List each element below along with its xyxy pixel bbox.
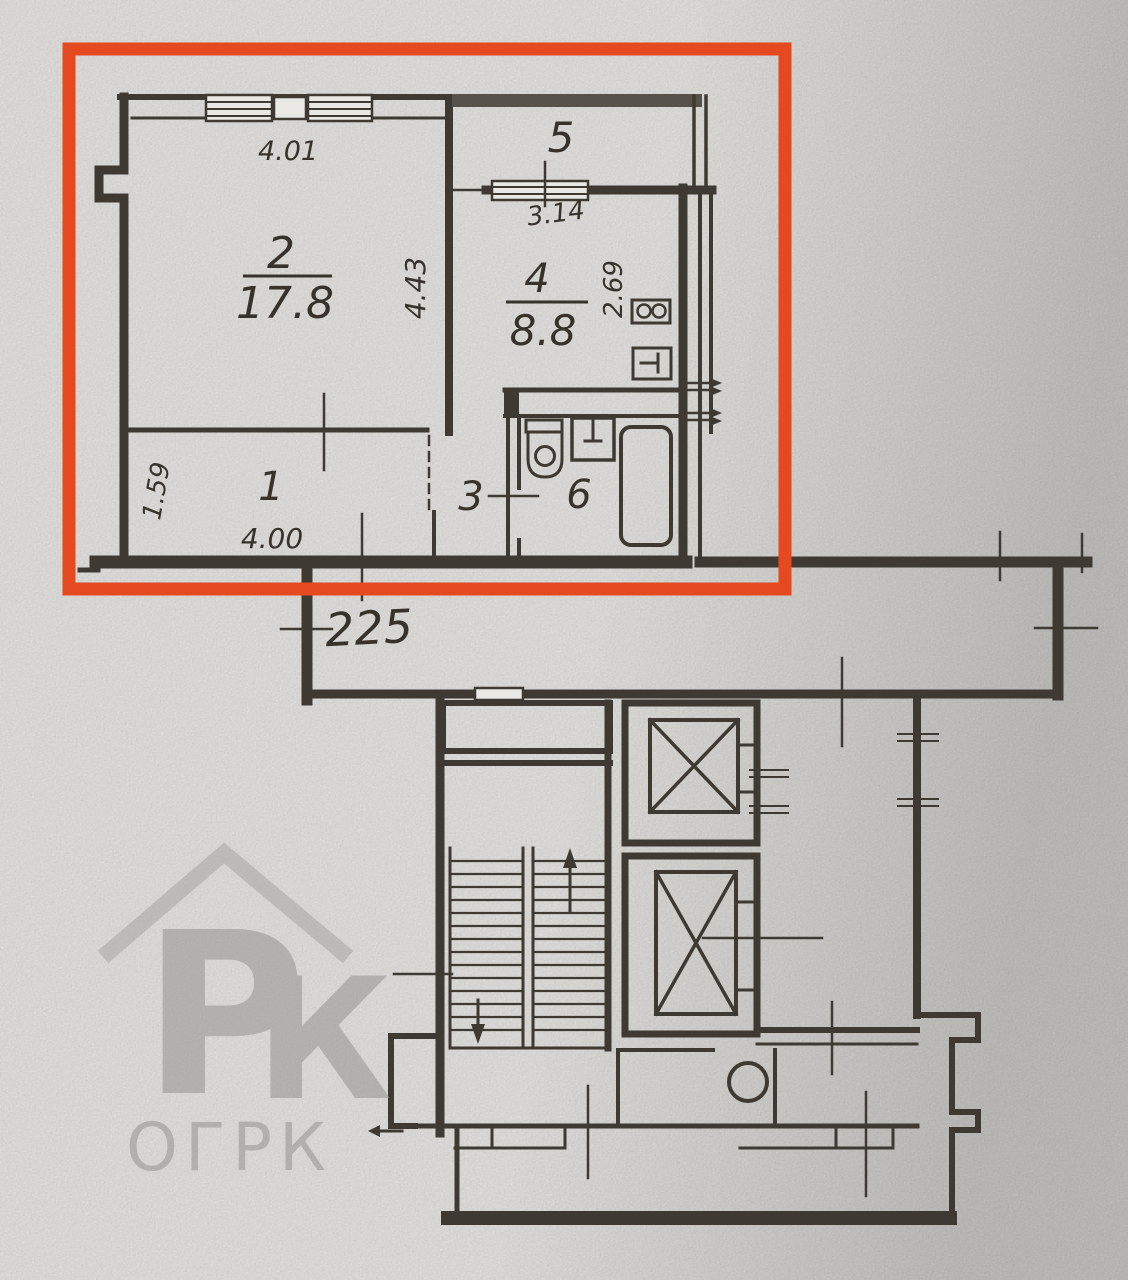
dimension-label: 4.43	[399, 257, 432, 319]
window-pier	[274, 97, 306, 119]
room-number: 4	[524, 256, 549, 302]
dimension-label: 4.00	[241, 522, 303, 555]
window-room2	[206, 95, 372, 121]
corridor-door-threshold	[475, 688, 523, 700]
watermark-brand: ОГРК	[126, 1109, 333, 1186]
floorplan-scan: 2 17.8 4 8.8 5 1 3 6 4.01 4.43 3.14 2.69…	[0, 0, 1128, 1280]
room-number: 1	[258, 464, 283, 510]
balcony-rail-top	[452, 94, 702, 107]
room-number: 2	[267, 228, 295, 279]
wall-junction-block	[504, 392, 519, 417]
dimension-label: 4.01	[258, 136, 318, 167]
dimension-label: 2.69	[599, 260, 629, 318]
dimension-label: 225	[324, 599, 415, 658]
room-area: 17.8	[236, 278, 334, 329]
room-number: 5	[548, 113, 575, 162]
room-number: 6	[566, 472, 591, 518]
room-area: 8.8	[510, 306, 577, 355]
room-number: 3	[458, 474, 483, 520]
scanned-floorplan-page: 2 17.8 4 8.8 5 1 3 6 4.01 4.43 3.14 2.69…	[0, 0, 1128, 1280]
